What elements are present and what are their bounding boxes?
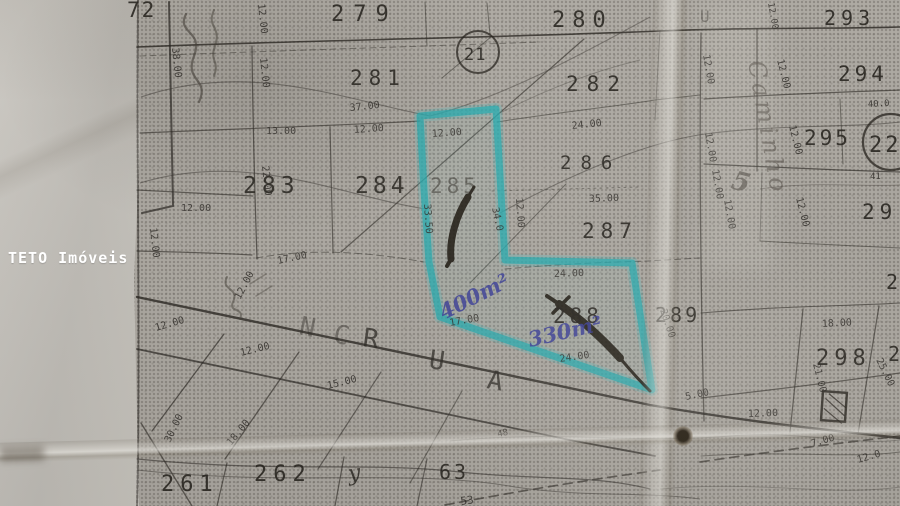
map-label: 41 <box>870 172 881 182</box>
lot-number: 2 <box>886 270 898 294</box>
map-label: 15.00 <box>326 374 358 392</box>
lot-number: 293 <box>824 6 875 30</box>
map-label: 12.00 <box>431 127 462 140</box>
lot-number: 286 <box>560 152 621 174</box>
map-label: A <box>485 365 506 397</box>
map-photo: 7227928029328128229429522212832842852862… <box>0 0 900 506</box>
map-label: 24.00 <box>571 118 602 132</box>
map-label: 12.00 <box>154 315 186 334</box>
map-label: 400m² <box>435 268 513 324</box>
map-label: 12.00 <box>257 57 271 88</box>
map-label: C <box>331 320 353 353</box>
map-label: 21.00 <box>810 362 828 394</box>
map-label: 12.00 <box>774 58 792 90</box>
map-label: 35.00 <box>589 193 619 205</box>
map-label: 12.00 <box>793 196 811 228</box>
map-label: N <box>297 312 319 345</box>
lot-number: 279 <box>331 2 398 27</box>
lot-number: 280 <box>552 8 613 33</box>
pencil-scribbles <box>184 10 272 319</box>
lot-number: 288 <box>553 304 603 328</box>
lot-number: 21 <box>464 45 486 65</box>
lot-number: 295 <box>804 126 851 150</box>
pen-marks <box>447 187 650 391</box>
agency-watermark: TETO Imóveis <box>8 249 128 267</box>
lot-number: 262 <box>254 462 312 487</box>
map-label: 17.00 <box>449 313 481 329</box>
map-label: 40.0 <box>868 99 890 110</box>
map-label: 34.0 <box>489 206 505 232</box>
circle-21 <box>457 31 499 73</box>
paper-hole <box>673 426 693 446</box>
circle-22 <box>863 114 900 170</box>
map-label: 12.00 <box>147 227 161 258</box>
map-label: 12.00 <box>239 341 271 359</box>
map-label: 37.00 <box>349 100 380 114</box>
map-label: 12.00 <box>181 203 211 214</box>
lot-number: 283 <box>243 173 300 199</box>
map-label: 53 <box>460 493 475 506</box>
map-label: 12.00 <box>786 124 804 156</box>
lot-number: 284 <box>355 173 409 199</box>
fold-edge-smudge <box>0 446 44 462</box>
lot-number: 2 <box>888 342 900 366</box>
map-label: U <box>427 345 447 377</box>
lot-number: 298 <box>816 346 871 371</box>
map-label: 5.00 <box>684 387 710 403</box>
lot-number: 287 <box>582 219 638 243</box>
map-label: 330m² <box>526 311 605 352</box>
lot-number: 261 <box>161 472 219 497</box>
lot-number: 63 <box>439 460 469 484</box>
hatched-box-symbol <box>821 391 847 424</box>
map-label: y <box>345 460 362 487</box>
map-label: 22.00 <box>259 165 273 196</box>
map-label: 38.00 <box>169 47 183 78</box>
map-label: 12.00 <box>353 123 384 136</box>
map-label: 13.00 <box>266 126 296 137</box>
vertical-fold-highlight <box>700 0 774 270</box>
map-label: 24.00 <box>554 268 584 280</box>
highlighted-parcel <box>420 109 652 390</box>
map-label: R <box>361 323 381 355</box>
map-label: 33.50 <box>421 203 434 234</box>
map-label: 12.00 <box>233 270 257 302</box>
lot-number: 22 <box>869 133 900 158</box>
lot-number: 281 <box>350 66 406 90</box>
map-label: 18.00 <box>822 317 853 330</box>
map-label: 285 <box>430 174 480 198</box>
map-label: 12.00 <box>748 408 778 420</box>
lot-number: 282 <box>566 72 628 96</box>
map-label: 12.00 <box>513 197 526 228</box>
map-label: 25.00 <box>873 356 896 388</box>
map-label: 17.00 <box>276 250 308 267</box>
map-label: 12.00 <box>255 3 269 34</box>
lot-number: 294 <box>838 62 888 86</box>
map-label: 24.00 <box>559 350 590 365</box>
map-label: 12.0 <box>856 449 882 466</box>
lot-number: 29 <box>862 200 897 224</box>
